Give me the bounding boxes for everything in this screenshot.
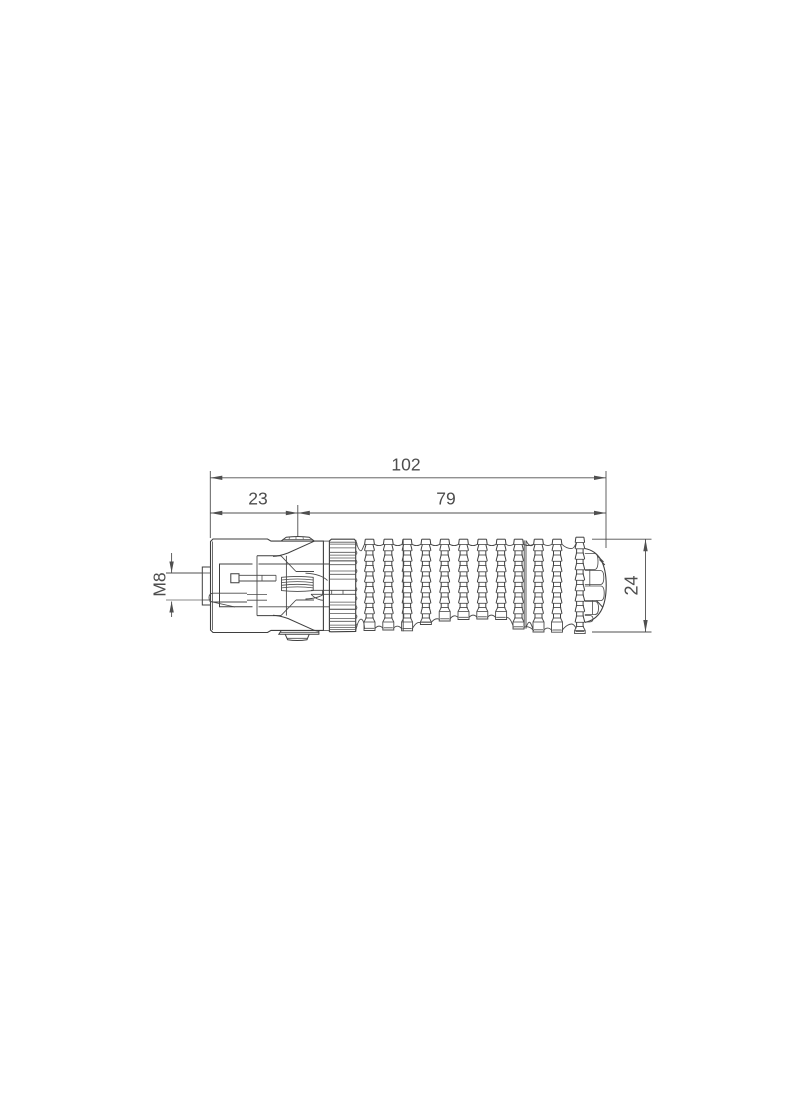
svg-text:M8: M8 (150, 572, 170, 596)
svg-text:102: 102 (391, 455, 420, 475)
svg-text:79: 79 (436, 489, 455, 509)
svg-text:23: 23 (248, 489, 267, 509)
svg-text:24: 24 (622, 575, 642, 595)
